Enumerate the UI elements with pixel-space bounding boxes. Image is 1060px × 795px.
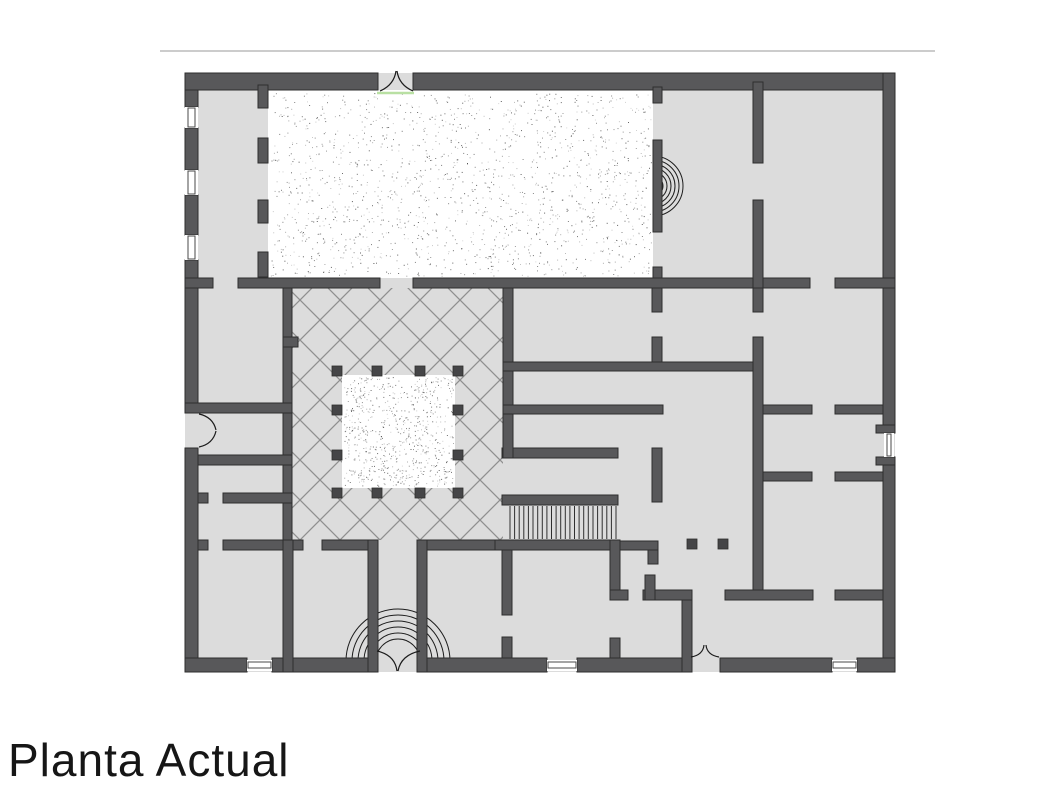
wall xyxy=(198,493,208,503)
wall xyxy=(238,278,380,288)
wall xyxy=(857,658,895,672)
column xyxy=(453,366,463,376)
wall xyxy=(763,472,812,481)
wall xyxy=(835,472,883,481)
column xyxy=(453,405,463,415)
wall xyxy=(883,465,895,672)
wall xyxy=(835,405,883,414)
wall xyxy=(368,540,378,672)
column xyxy=(332,450,342,460)
wall xyxy=(753,200,763,288)
window xyxy=(185,107,198,128)
wall xyxy=(185,448,198,672)
window xyxy=(185,235,198,260)
wall xyxy=(185,278,213,288)
plan-title: Planta Actual xyxy=(8,733,290,787)
wall xyxy=(283,337,298,347)
window xyxy=(884,433,894,457)
wall xyxy=(753,337,763,600)
wall xyxy=(645,575,655,600)
wall xyxy=(427,658,547,672)
wall xyxy=(258,138,268,163)
wall xyxy=(653,87,662,103)
wall xyxy=(503,362,763,371)
wall xyxy=(413,278,810,288)
column xyxy=(332,405,342,415)
wall xyxy=(185,403,292,413)
hall-floor xyxy=(268,90,653,278)
column xyxy=(453,450,463,460)
wall xyxy=(258,200,268,223)
wall xyxy=(610,590,628,600)
wall xyxy=(652,288,662,312)
column xyxy=(453,488,463,498)
wall xyxy=(682,600,692,672)
wall xyxy=(502,448,618,458)
wall xyxy=(876,425,895,433)
wall xyxy=(835,590,883,600)
wall xyxy=(322,540,372,550)
window xyxy=(185,170,198,195)
wall xyxy=(502,540,512,615)
wall xyxy=(258,252,268,277)
wall xyxy=(502,495,618,505)
floor-plan xyxy=(0,0,1060,795)
wall xyxy=(495,540,618,550)
wall xyxy=(417,540,427,672)
wall xyxy=(610,638,620,658)
wall xyxy=(185,195,198,235)
wall xyxy=(577,658,690,672)
column xyxy=(687,539,697,549)
wall xyxy=(835,278,895,288)
wall xyxy=(198,455,292,465)
wall xyxy=(185,128,198,170)
wall xyxy=(417,540,502,550)
column xyxy=(415,488,425,498)
wall xyxy=(753,288,763,312)
column xyxy=(372,366,382,376)
wall xyxy=(610,540,620,590)
page: Planta Actual xyxy=(0,0,1060,795)
wall xyxy=(876,457,895,465)
wall xyxy=(258,85,268,108)
wall xyxy=(753,82,763,163)
column xyxy=(332,366,342,376)
wall xyxy=(652,337,662,362)
wall xyxy=(618,541,658,550)
great-hall-stipple xyxy=(268,90,653,278)
wall xyxy=(652,448,662,502)
wall xyxy=(720,658,832,672)
inner-court-floor xyxy=(342,375,455,488)
column xyxy=(332,488,342,498)
column xyxy=(718,539,728,549)
column xyxy=(372,488,382,498)
wall xyxy=(653,140,662,232)
wall xyxy=(883,73,895,425)
inner-court xyxy=(342,375,455,488)
wall xyxy=(198,540,208,550)
wall xyxy=(185,73,378,90)
wall xyxy=(725,590,813,600)
wall xyxy=(648,550,658,564)
wall xyxy=(503,288,513,458)
wall xyxy=(503,405,663,414)
column xyxy=(415,366,425,376)
wall xyxy=(223,493,292,503)
wall xyxy=(185,658,247,672)
wall xyxy=(283,540,293,672)
wall xyxy=(502,637,512,658)
wall xyxy=(763,405,812,414)
